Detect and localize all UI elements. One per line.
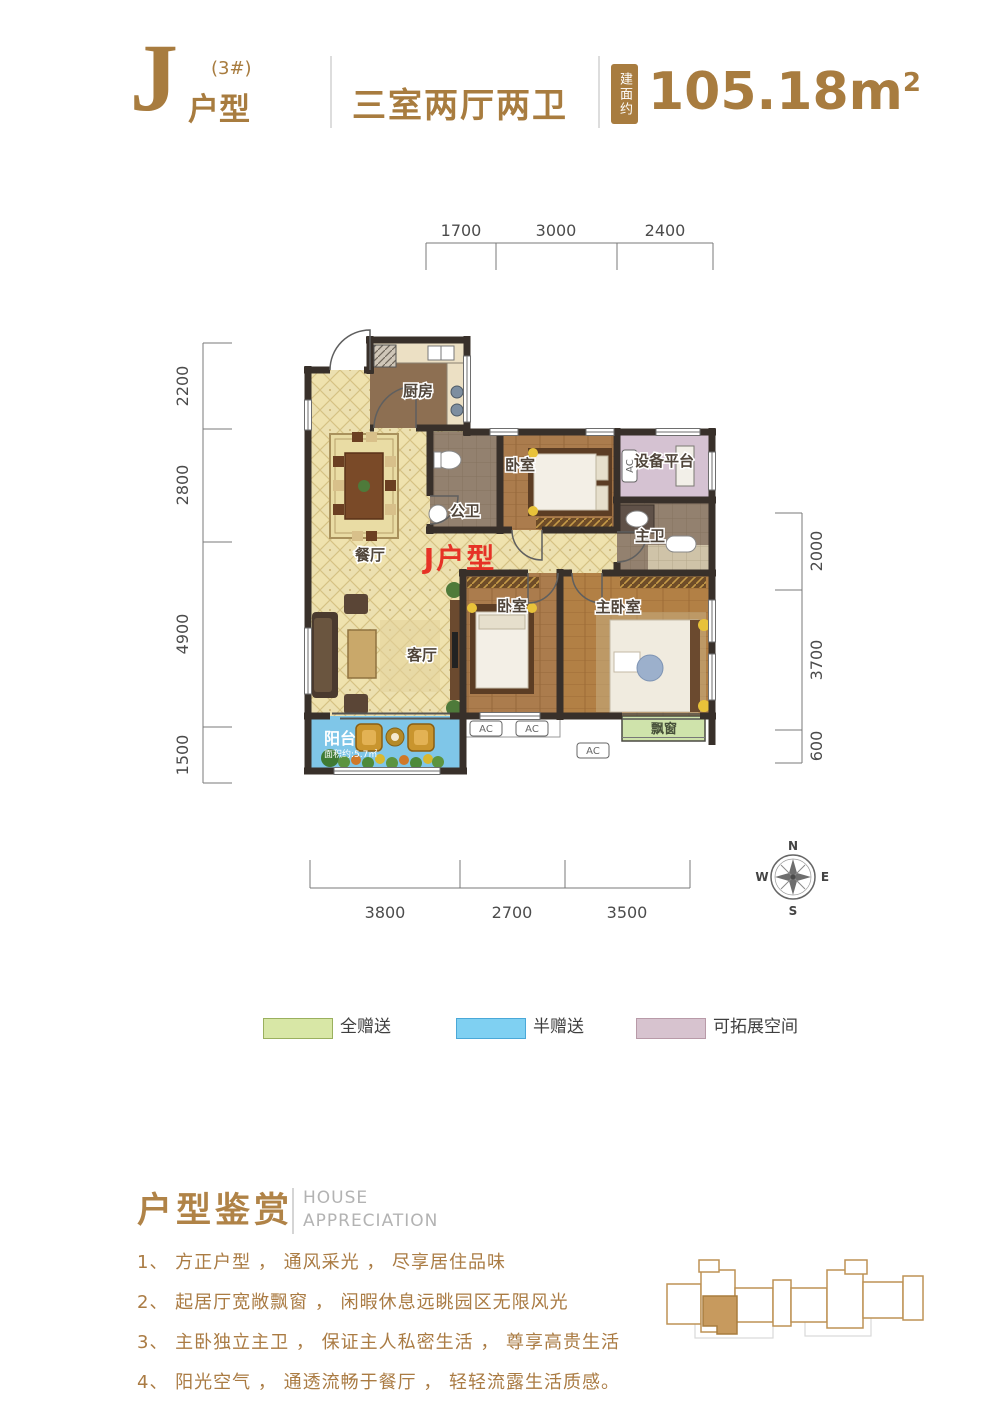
dim-left-2: 2800 — [173, 465, 192, 506]
dim-right-3: 600 — [807, 731, 826, 762]
label-master-bath: 主卫 — [635, 527, 665, 545]
legend-swatch-expandable — [636, 1018, 706, 1039]
label-bay-window: 飘窗 — [651, 721, 677, 737]
dim-left-4: 1500 — [173, 735, 192, 776]
label-living: 客厅 — [406, 646, 437, 664]
appreciation-subtitle-1: HOUSE — [303, 1188, 368, 1208]
appreciation-divider — [292, 1188, 294, 1234]
label-master-bedroom: 主卧室 — [595, 598, 640, 616]
label-bath: 公卫 — [450, 502, 480, 520]
compass-s: S — [789, 904, 798, 918]
bed-top-bedroom — [528, 448, 612, 516]
dim-bottom-2: 2700 — [492, 903, 533, 922]
legend-label-half-gift: 半赠送 — [533, 1018, 584, 1037]
dim-bottom-3: 3500 — [607, 903, 648, 922]
dim-top-2: 3000 — [536, 221, 577, 240]
tv-cabinet — [450, 600, 460, 700]
dim-right-2: 3700 — [807, 640, 826, 681]
floor-plan: AC AC AC AC 厨房 公卫 卧室 设备平台 主卫 餐厅 客厅 卧室 主卧… — [0, 0, 1000, 1000]
appreciation-list: 1、 方正户型 ， 通风采光 ， 尽享居住品味 2、 起居厅宽敞飘窗 ， 闲暇休… — [137, 1248, 697, 1408]
label-kitchen: 厨房 — [403, 382, 433, 400]
label-balcony: 阳台 — [324, 729, 356, 748]
appreciation-title: 户型鉴赏 — [137, 1182, 293, 1233]
compass-e: E — [821, 870, 829, 884]
legend-swatch-full-gift — [263, 1018, 333, 1039]
ac-label: AC — [479, 724, 493, 735]
appreciation-item: 2、 起居厅宽敞飘窗 ， 闲暇休息远眺园区无限风光 — [137, 1288, 697, 1314]
dim-right-1: 2000 — [807, 531, 826, 572]
label-dining: 餐厅 — [355, 546, 385, 564]
dim-bottom-1: 3800 — [365, 903, 406, 922]
label-balcony-area: 面积约:5.7㎡ — [324, 748, 377, 760]
appreciation-item: 1、 方正户型 ， 通风采光 ， 尽享居住品味 — [137, 1248, 697, 1274]
appreciation-item: 3、 主卧独立主卫 ， 保证主人私密生活 ， 尊享高贵生活 — [137, 1328, 697, 1354]
dim-left-3: 4900 — [173, 614, 192, 655]
compass-icon: N S W E — [755, 839, 829, 918]
bed-master — [596, 612, 710, 712]
appreciation-subtitle-2: APPRECIATION — [303, 1211, 438, 1231]
compass-w: W — [755, 870, 768, 884]
building-key-plan — [655, 1252, 935, 1362]
legend-swatch-half-gift — [456, 1018, 526, 1039]
label-equipment: 设备平台 — [634, 452, 694, 470]
label-bedroom-top: 卧室 — [505, 456, 535, 474]
label-bedroom-bottom: 卧室 — [497, 597, 527, 615]
legend-label-expandable: 可拓展空间 — [713, 1018, 798, 1037]
bed-bottom-bedroom — [467, 603, 537, 694]
dim-top-1: 1700 — [441, 221, 482, 240]
dim-top-3: 2400 — [645, 221, 686, 240]
wardrobe — [620, 577, 706, 588]
ac-label: AC — [525, 724, 539, 735]
dining-table — [330, 432, 398, 541]
ac-label: AC — [586, 746, 600, 757]
appreciation-item: 4、 阳光空气 ， 通透流畅于餐厅 ， 轻轻流露生活质感。 — [137, 1368, 697, 1394]
dim-left-1: 2200 — [173, 366, 192, 407]
compass-n: N — [788, 839, 798, 853]
unit-label: J户型 — [422, 542, 496, 575]
legend-label-full-gift: 全赠送 — [340, 1018, 391, 1037]
